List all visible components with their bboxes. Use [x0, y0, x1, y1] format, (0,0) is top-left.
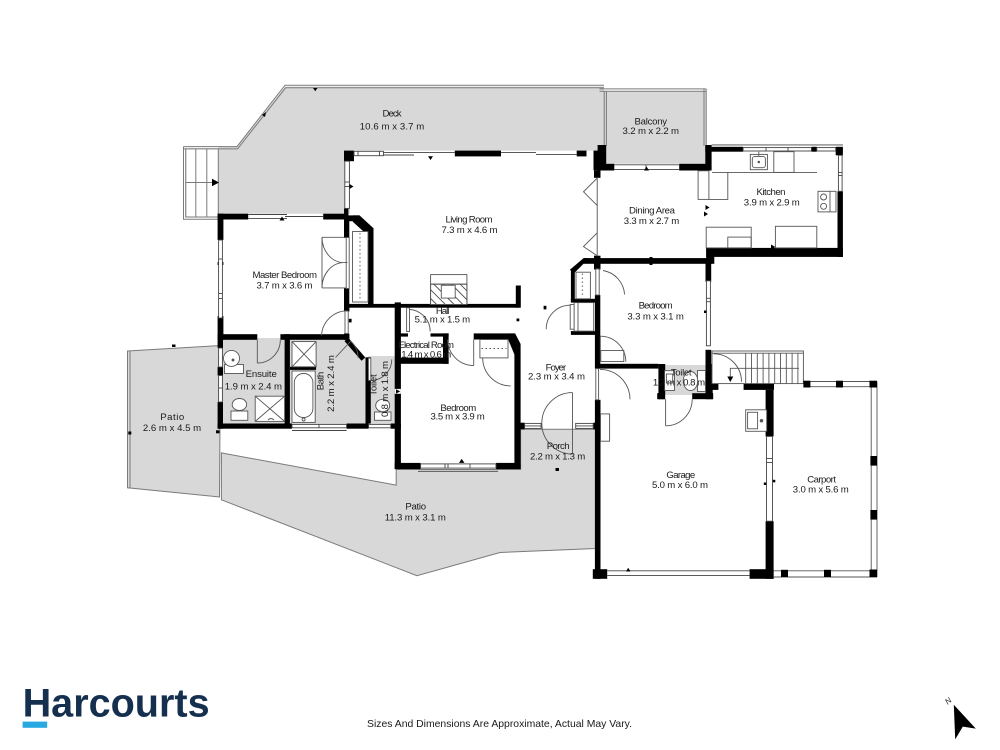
- svg-text:3.5 m x 3.9 m: 3.5 m x 3.9 m: [430, 412, 484, 423]
- svg-text:3.2 m x 2.2 m: 3.2 m x 2.2 m: [623, 126, 680, 137]
- svg-text:Master Bedroom: Master Bedroom: [252, 270, 317, 281]
- svg-text:Kitchen: Kitchen: [757, 187, 786, 198]
- svg-text:0.8 m x 1.8 m: 0.8 m x 1.8 m: [380, 361, 391, 417]
- svg-text:2.3 m x 3.4 m: 2.3 m x 3.4 m: [528, 372, 585, 383]
- svg-text:Bedroom: Bedroom: [639, 301, 673, 312]
- svg-text:Living Room: Living Room: [446, 215, 493, 226]
- svg-text:2.2 m x 2.4 m: 2.2 m x 2.4 m: [326, 355, 337, 412]
- svg-text:Harcourts: Harcourts: [23, 681, 210, 725]
- svg-text:Deck: Deck: [383, 109, 402, 120]
- svg-text:10.6 m x 3.7 m: 10.6 m x 3.7 m: [360, 122, 425, 133]
- svg-text:3.3 m x 2.7 m: 3.3 m x 2.7 m: [624, 216, 680, 227]
- svg-text:11.3 m x 3.1 m: 11.3 m x 3.1 m: [385, 513, 446, 524]
- svg-text:5.1 m x 1.5 m: 5.1 m x 1.5 m: [415, 315, 471, 326]
- svg-text:3.7 m x 3.6 m: 3.7 m x 3.6 m: [257, 281, 313, 292]
- svg-text:3.9 m x 2.9 m: 3.9 m x 2.9 m: [744, 198, 800, 209]
- svg-text:Bath: Bath: [315, 372, 326, 391]
- svg-text:2.2 m x 1.3 m: 2.2 m x 1.3 m: [530, 451, 585, 462]
- svg-text:Ensuite: Ensuite: [246, 369, 277, 380]
- svg-text:Patio: Patio: [405, 502, 426, 513]
- svg-text:2.6 m x 4.5 m: 2.6 m x 4.5 m: [143, 423, 201, 434]
- svg-text:Toilet: Toilet: [369, 374, 380, 396]
- svg-text:Sizes And Dimensions Are Appro: Sizes And Dimensions Are Approximate, Ac…: [367, 719, 632, 730]
- svg-text:1.4 m x 0.6 m: 1.4 m x 0.6 m: [401, 350, 451, 361]
- svg-text:5.0 m x 6.0 m: 5.0 m x 6.0 m: [652, 480, 708, 491]
- svg-text:1.9 m x 2.4 m: 1.9 m x 2.4 m: [225, 381, 282, 392]
- svg-text:1.2 m x 0.8 m: 1.2 m x 0.8 m: [653, 378, 705, 389]
- svg-text:Dining Area: Dining Area: [629, 205, 676, 216]
- svg-text:7.3 m x 4.6 m: 7.3 m x 4.6 m: [442, 225, 498, 236]
- svg-text:3.0 m x 5.6 m: 3.0 m x 5.6 m: [793, 484, 849, 495]
- svg-text:Patio: Patio: [160, 412, 184, 423]
- svg-text:3.3 m x 3.1 m: 3.3 m x 3.1 m: [627, 312, 684, 323]
